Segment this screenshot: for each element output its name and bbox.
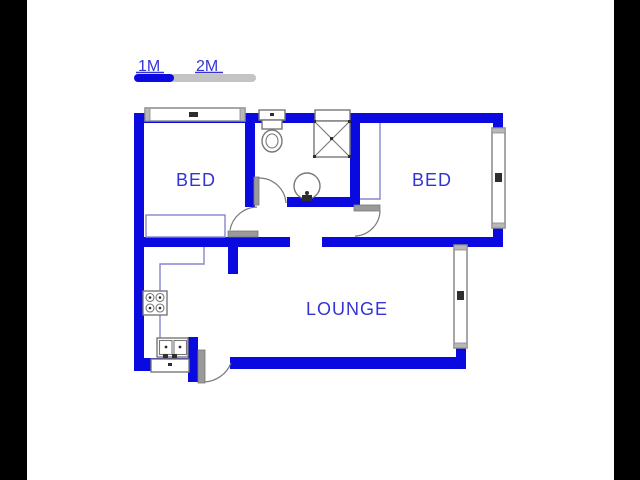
floor-plan-page: BED BED LOUNGE 1M 2M	[0, 0, 640, 480]
doors	[198, 177, 380, 383]
scale-bar-1m-segment	[134, 74, 174, 82]
shower-icon	[313, 110, 351, 158]
stove-icon	[143, 291, 167, 315]
room-label-bed-2: BED	[412, 170, 452, 190]
left-black-bar	[0, 0, 27, 480]
basin-icon	[294, 173, 320, 201]
window-icon-lounge-right	[454, 245, 467, 348]
window-icon-bed2-right	[492, 128, 505, 228]
wall-bath-bottom	[287, 197, 360, 207]
toilet-icon	[259, 110, 285, 152]
floor-plan-canvas: BED BED LOUNGE 1M 2M	[0, 0, 640, 480]
room-label-bed-1: BED	[176, 170, 216, 190]
double-sink-icon	[151, 338, 189, 372]
wall-kitchen-stub	[228, 247, 238, 274]
bed1-cupboard-outline	[146, 215, 225, 237]
door-swing-icon-bathroom	[254, 177, 286, 205]
wall-mid-right	[322, 237, 503, 247]
wall-bottom-right	[230, 357, 466, 369]
door-swing-icon-bed1	[228, 207, 258, 237]
right-black-bar	[614, 0, 640, 480]
bed2-niche-outline	[360, 123, 380, 199]
room-label-lounge: LOUNGE	[306, 299, 388, 319]
wall-bath-bed2-divider	[350, 113, 360, 207]
scale-bar-2m-segment	[170, 74, 256, 82]
door-swing-icon-bed2	[354, 205, 380, 236]
door-swing-icon-entrance	[198, 350, 231, 383]
wall-bed1-bath-divider	[245, 113, 255, 207]
scale-bar: 1M 2M	[134, 58, 256, 82]
window-icon-bed1-top	[145, 108, 245, 121]
wall-mid-left	[134, 237, 290, 247]
